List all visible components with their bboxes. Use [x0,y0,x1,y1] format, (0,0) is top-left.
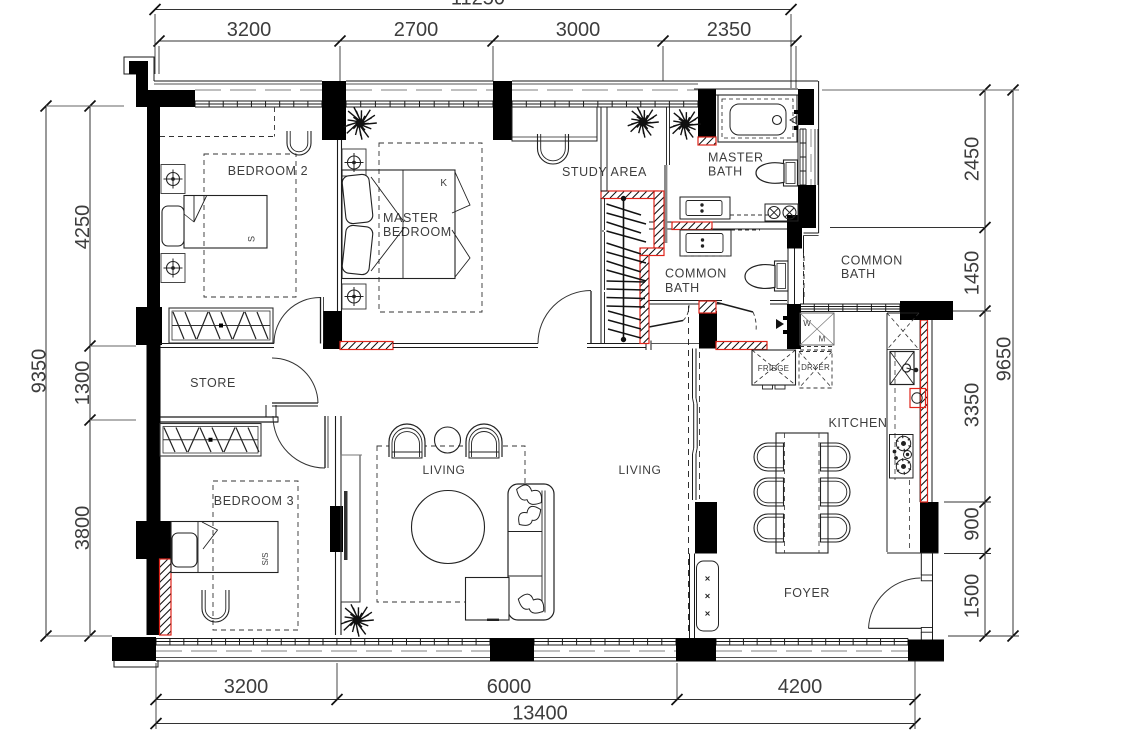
svg-text:1300: 1300 [72,361,94,406]
svg-text:KITCHEN: KITCHEN [828,416,887,430]
svg-text:STUDY AREA: STUDY AREA [562,165,647,179]
svg-text:COMMON: COMMON [665,267,727,281]
svg-text:BEDROOM 3: BEDROOM 3 [214,494,294,508]
svg-text:1450: 1450 [962,251,984,296]
svg-text:BATH: BATH [708,165,743,179]
svg-text:S: S [247,236,257,242]
svg-text:1500: 1500 [962,574,984,619]
svg-text:LIVING: LIVING [423,463,466,477]
svg-text:W: W [803,319,811,328]
svg-text:6000: 6000 [487,676,532,698]
svg-text:FOYER: FOYER [784,586,830,600]
svg-text:STORE: STORE [190,376,236,390]
svg-text:LIVING: LIVING [619,463,662,477]
svg-text:9650: 9650 [994,337,1016,382]
svg-text:9350: 9350 [29,349,51,394]
svg-text:MASTER: MASTER [383,211,439,225]
svg-text:FRIDGE: FRIDGE [758,364,789,373]
svg-text:3200: 3200 [227,19,272,41]
svg-text:13400: 13400 [512,703,568,725]
svg-text:4250: 4250 [72,205,94,250]
svg-text:BATH: BATH [665,281,700,295]
svg-text:BATH: BATH [841,267,876,281]
svg-text:MASTER: MASTER [708,151,764,165]
svg-text:2450: 2450 [962,137,984,182]
svg-text:3000: 3000 [556,19,601,41]
svg-text:2350: 2350 [707,19,752,41]
svg-text:S/S: S/S [261,553,270,566]
svg-text:BEDROOM: BEDROOM [383,225,452,239]
svg-text:11250: 11250 [451,0,505,10]
svg-text:2700: 2700 [394,19,439,41]
svg-text:K: K [440,178,447,189]
svg-text:COMMON: COMMON [841,254,903,268]
svg-text:900: 900 [962,507,984,540]
svg-text:4200: 4200 [778,676,823,698]
svg-text:DRYER: DRYER [801,363,830,372]
svg-text:3800: 3800 [72,506,94,551]
svg-text:3350: 3350 [962,383,984,428]
svg-text:3200: 3200 [224,676,269,698]
